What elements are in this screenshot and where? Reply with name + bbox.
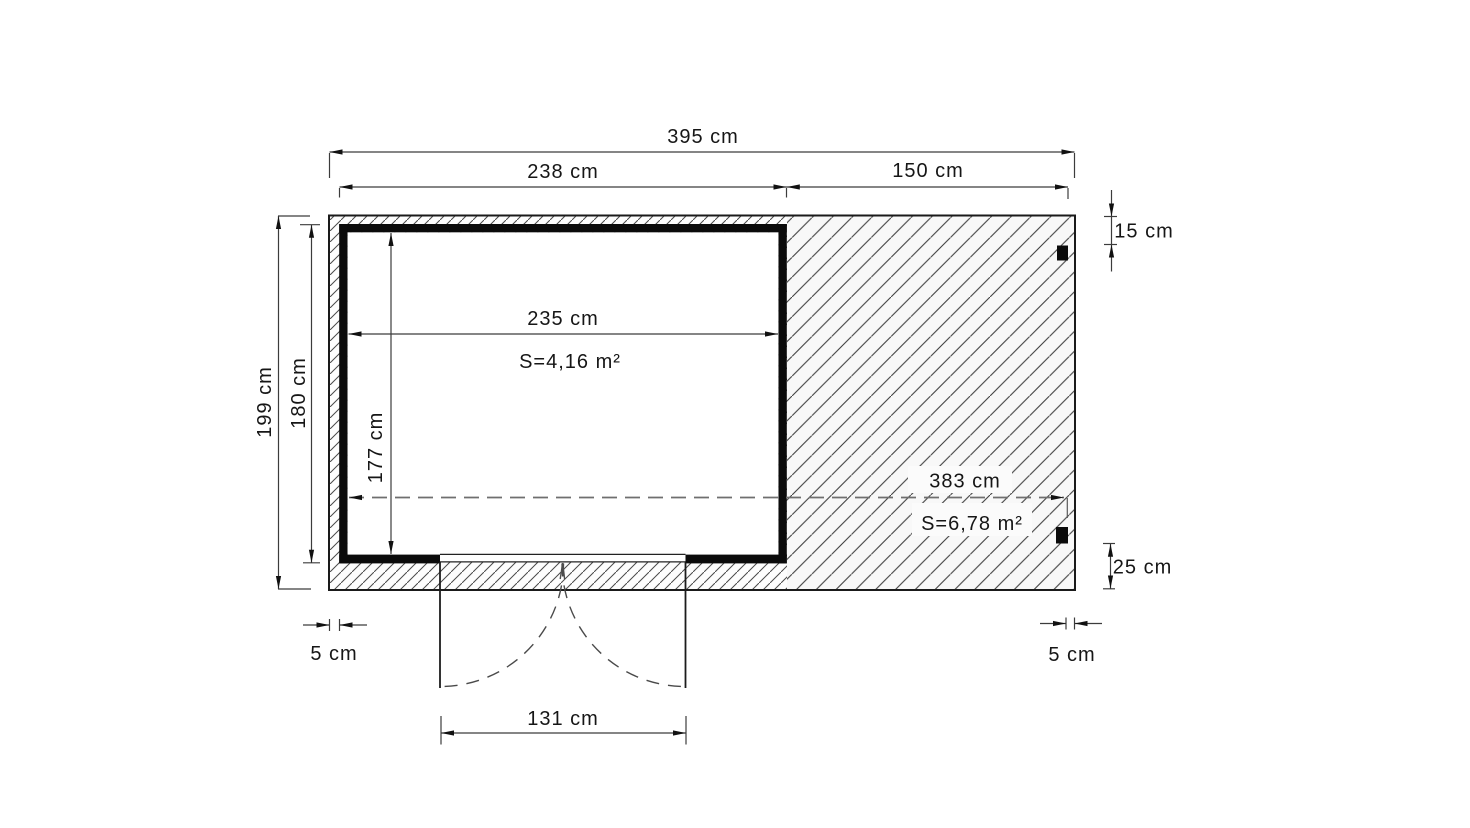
svg-text:238 cm: 238 cm: [527, 161, 599, 183]
svg-text:395 cm: 395 cm: [667, 126, 739, 148]
svg-text:S=6,78 m²: S=6,78 m²: [921, 513, 1023, 535]
svg-text:S=4,16 m²: S=4,16 m²: [519, 351, 621, 373]
svg-text:199 cm: 199 cm: [254, 366, 276, 438]
svg-text:15 cm: 15 cm: [1114, 221, 1173, 243]
svg-text:5 cm: 5 cm: [1048, 644, 1095, 666]
svg-text:131 cm: 131 cm: [527, 708, 599, 730]
svg-text:180 cm: 180 cm: [288, 357, 310, 429]
svg-text:25 cm: 25 cm: [1113, 557, 1172, 579]
svg-text:150 cm: 150 cm: [892, 160, 964, 182]
svg-text:5 cm: 5 cm: [310, 643, 357, 665]
svg-text:383 cm: 383 cm: [929, 471, 1001, 493]
svg-text:177 cm: 177 cm: [365, 412, 387, 484]
svg-text:235 cm: 235 cm: [527, 308, 599, 330]
